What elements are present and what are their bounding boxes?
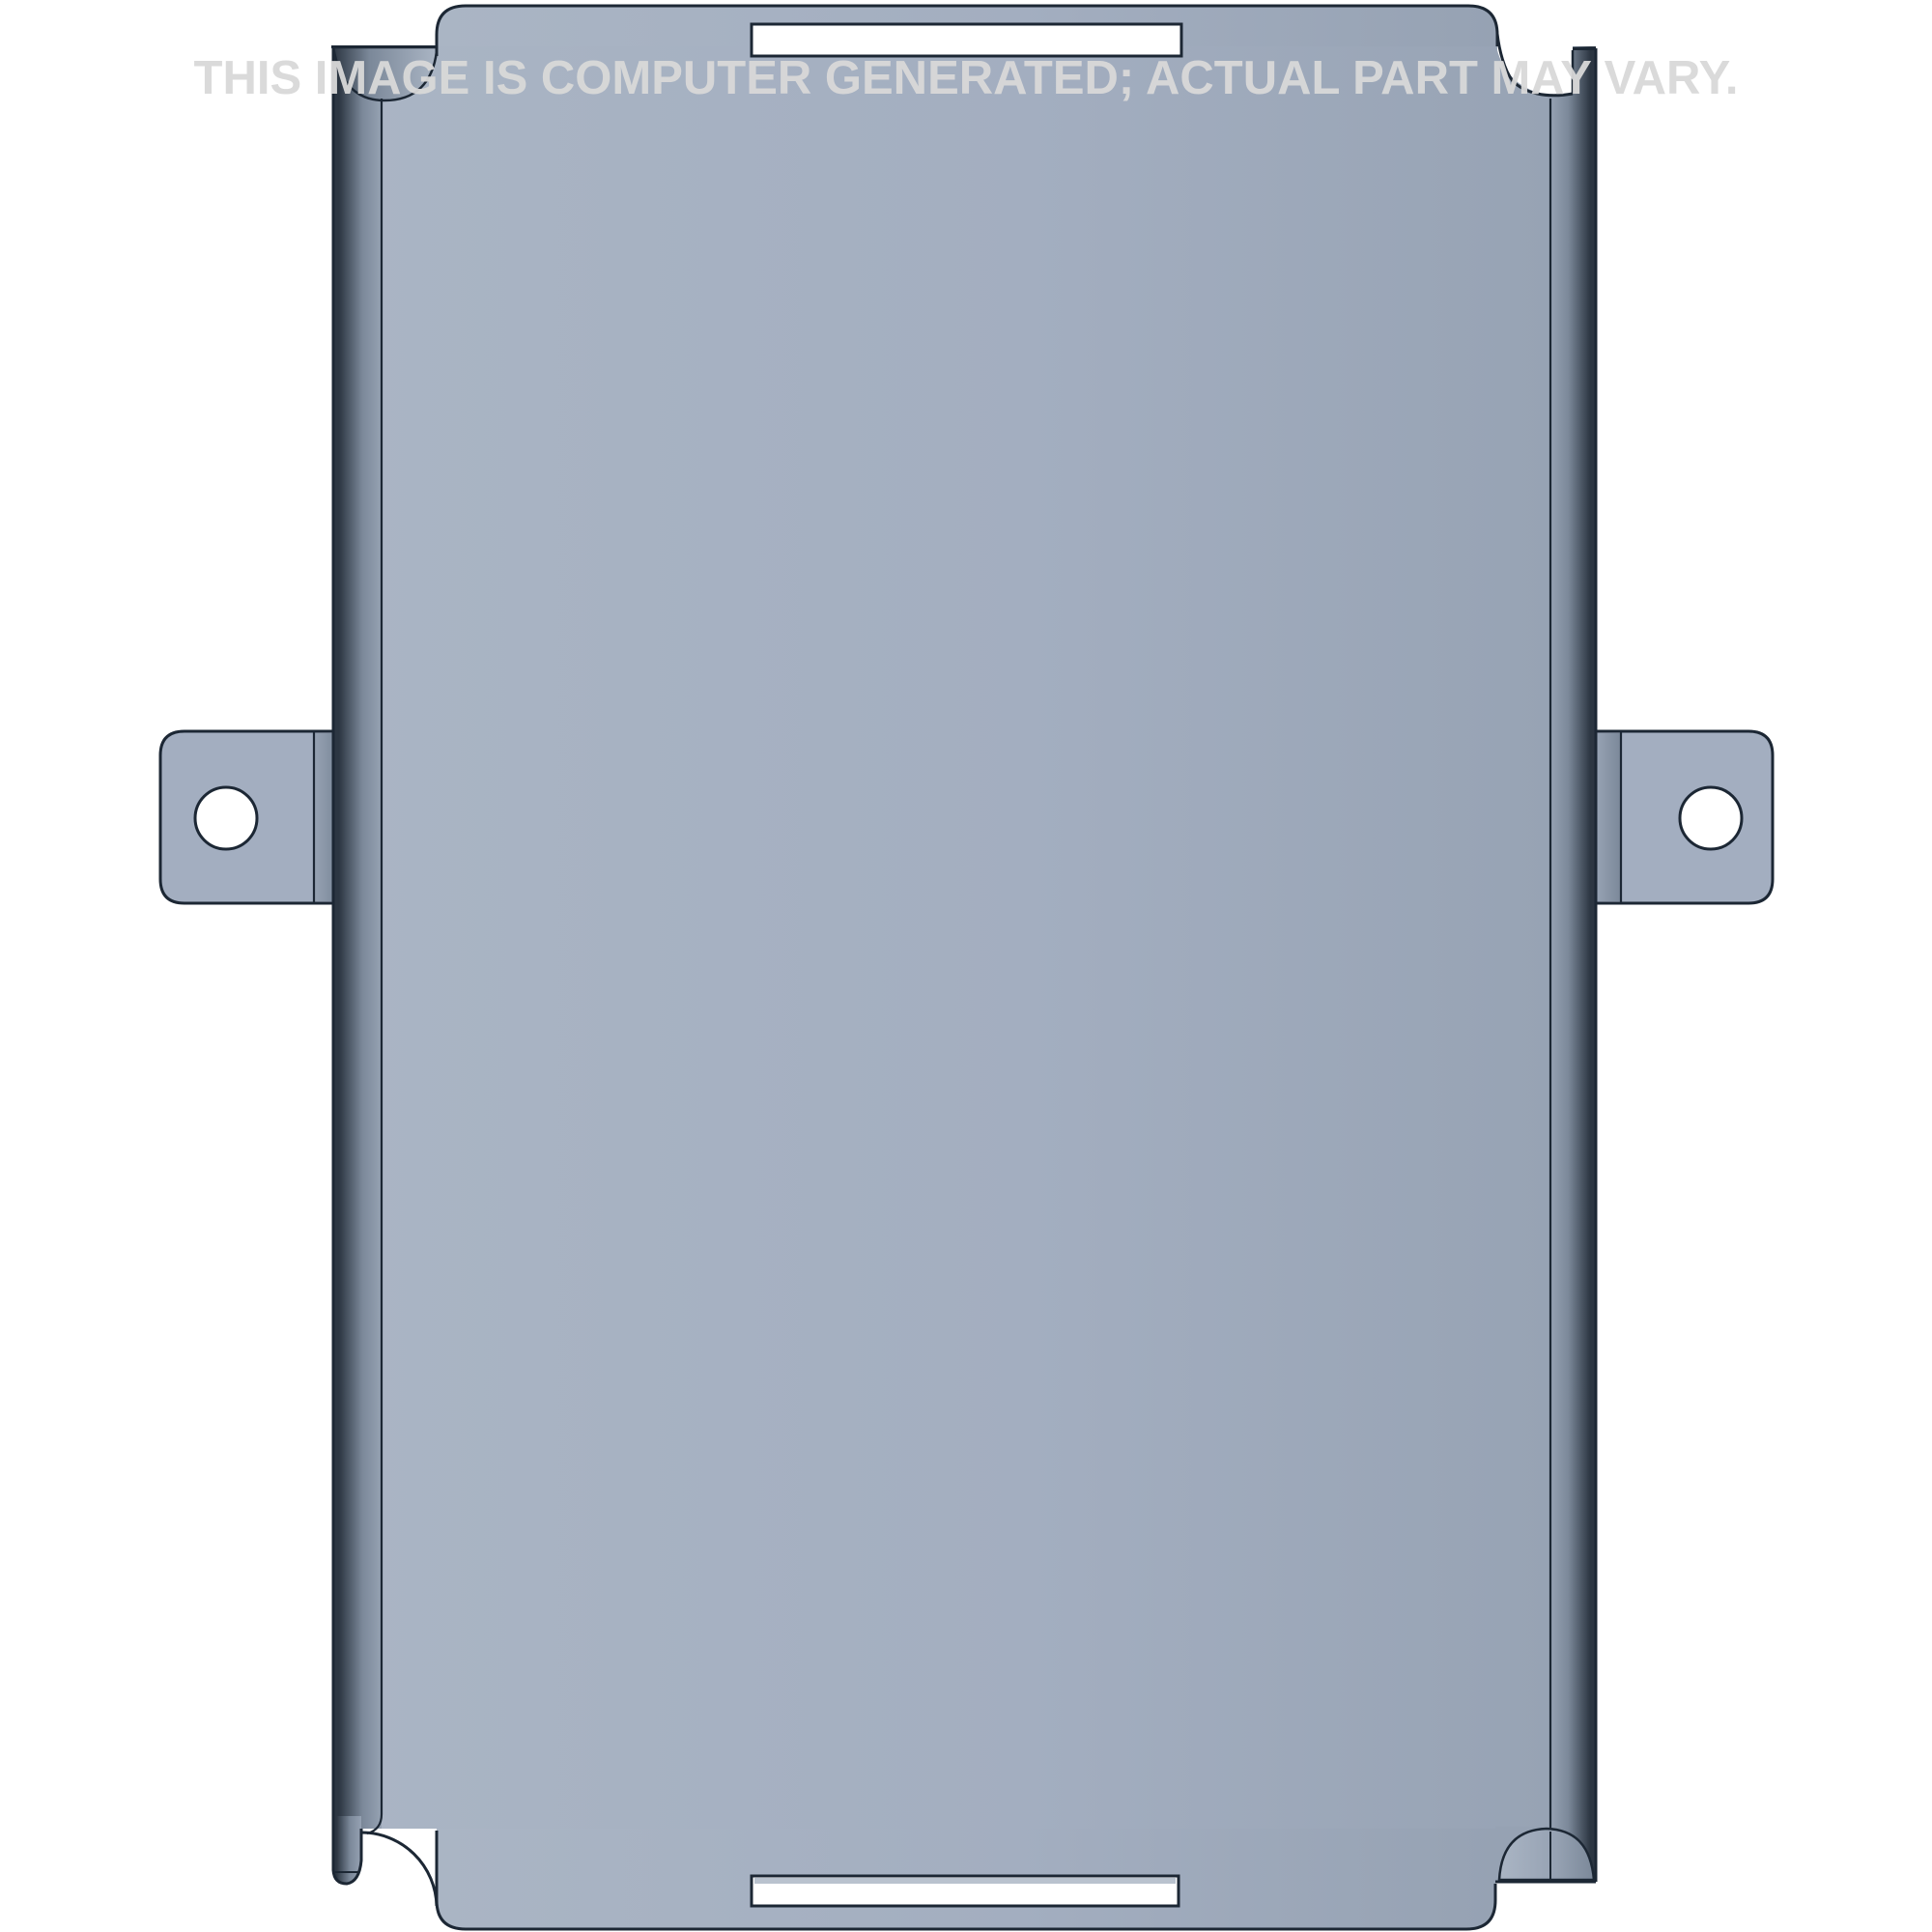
cad-part-page: THIS IMAGE IS COMPUTER GENERATED; ACTUAL… [0,0,1932,1932]
main-body-panel [333,46,1596,1829]
mounting-tab-right [1596,731,1773,903]
cad-render [0,0,1932,1932]
left-edge-fold-band [333,46,382,1829]
bottom-slot-inner-shade [754,1878,1176,1884]
bottom-slot-cutout [752,1876,1179,1906]
top-slot-cutout [752,24,1181,56]
mounting-hole-left [195,787,257,849]
right-edge-fold-band [1550,46,1596,1882]
tab-right-fold-strip [1597,733,1621,901]
top-slot-opening [752,24,1181,56]
mounting-tab-left [160,731,338,903]
mounting-hole-right [1680,787,1742,849]
corner-notch-bottom-left-curve [361,1833,437,1906]
